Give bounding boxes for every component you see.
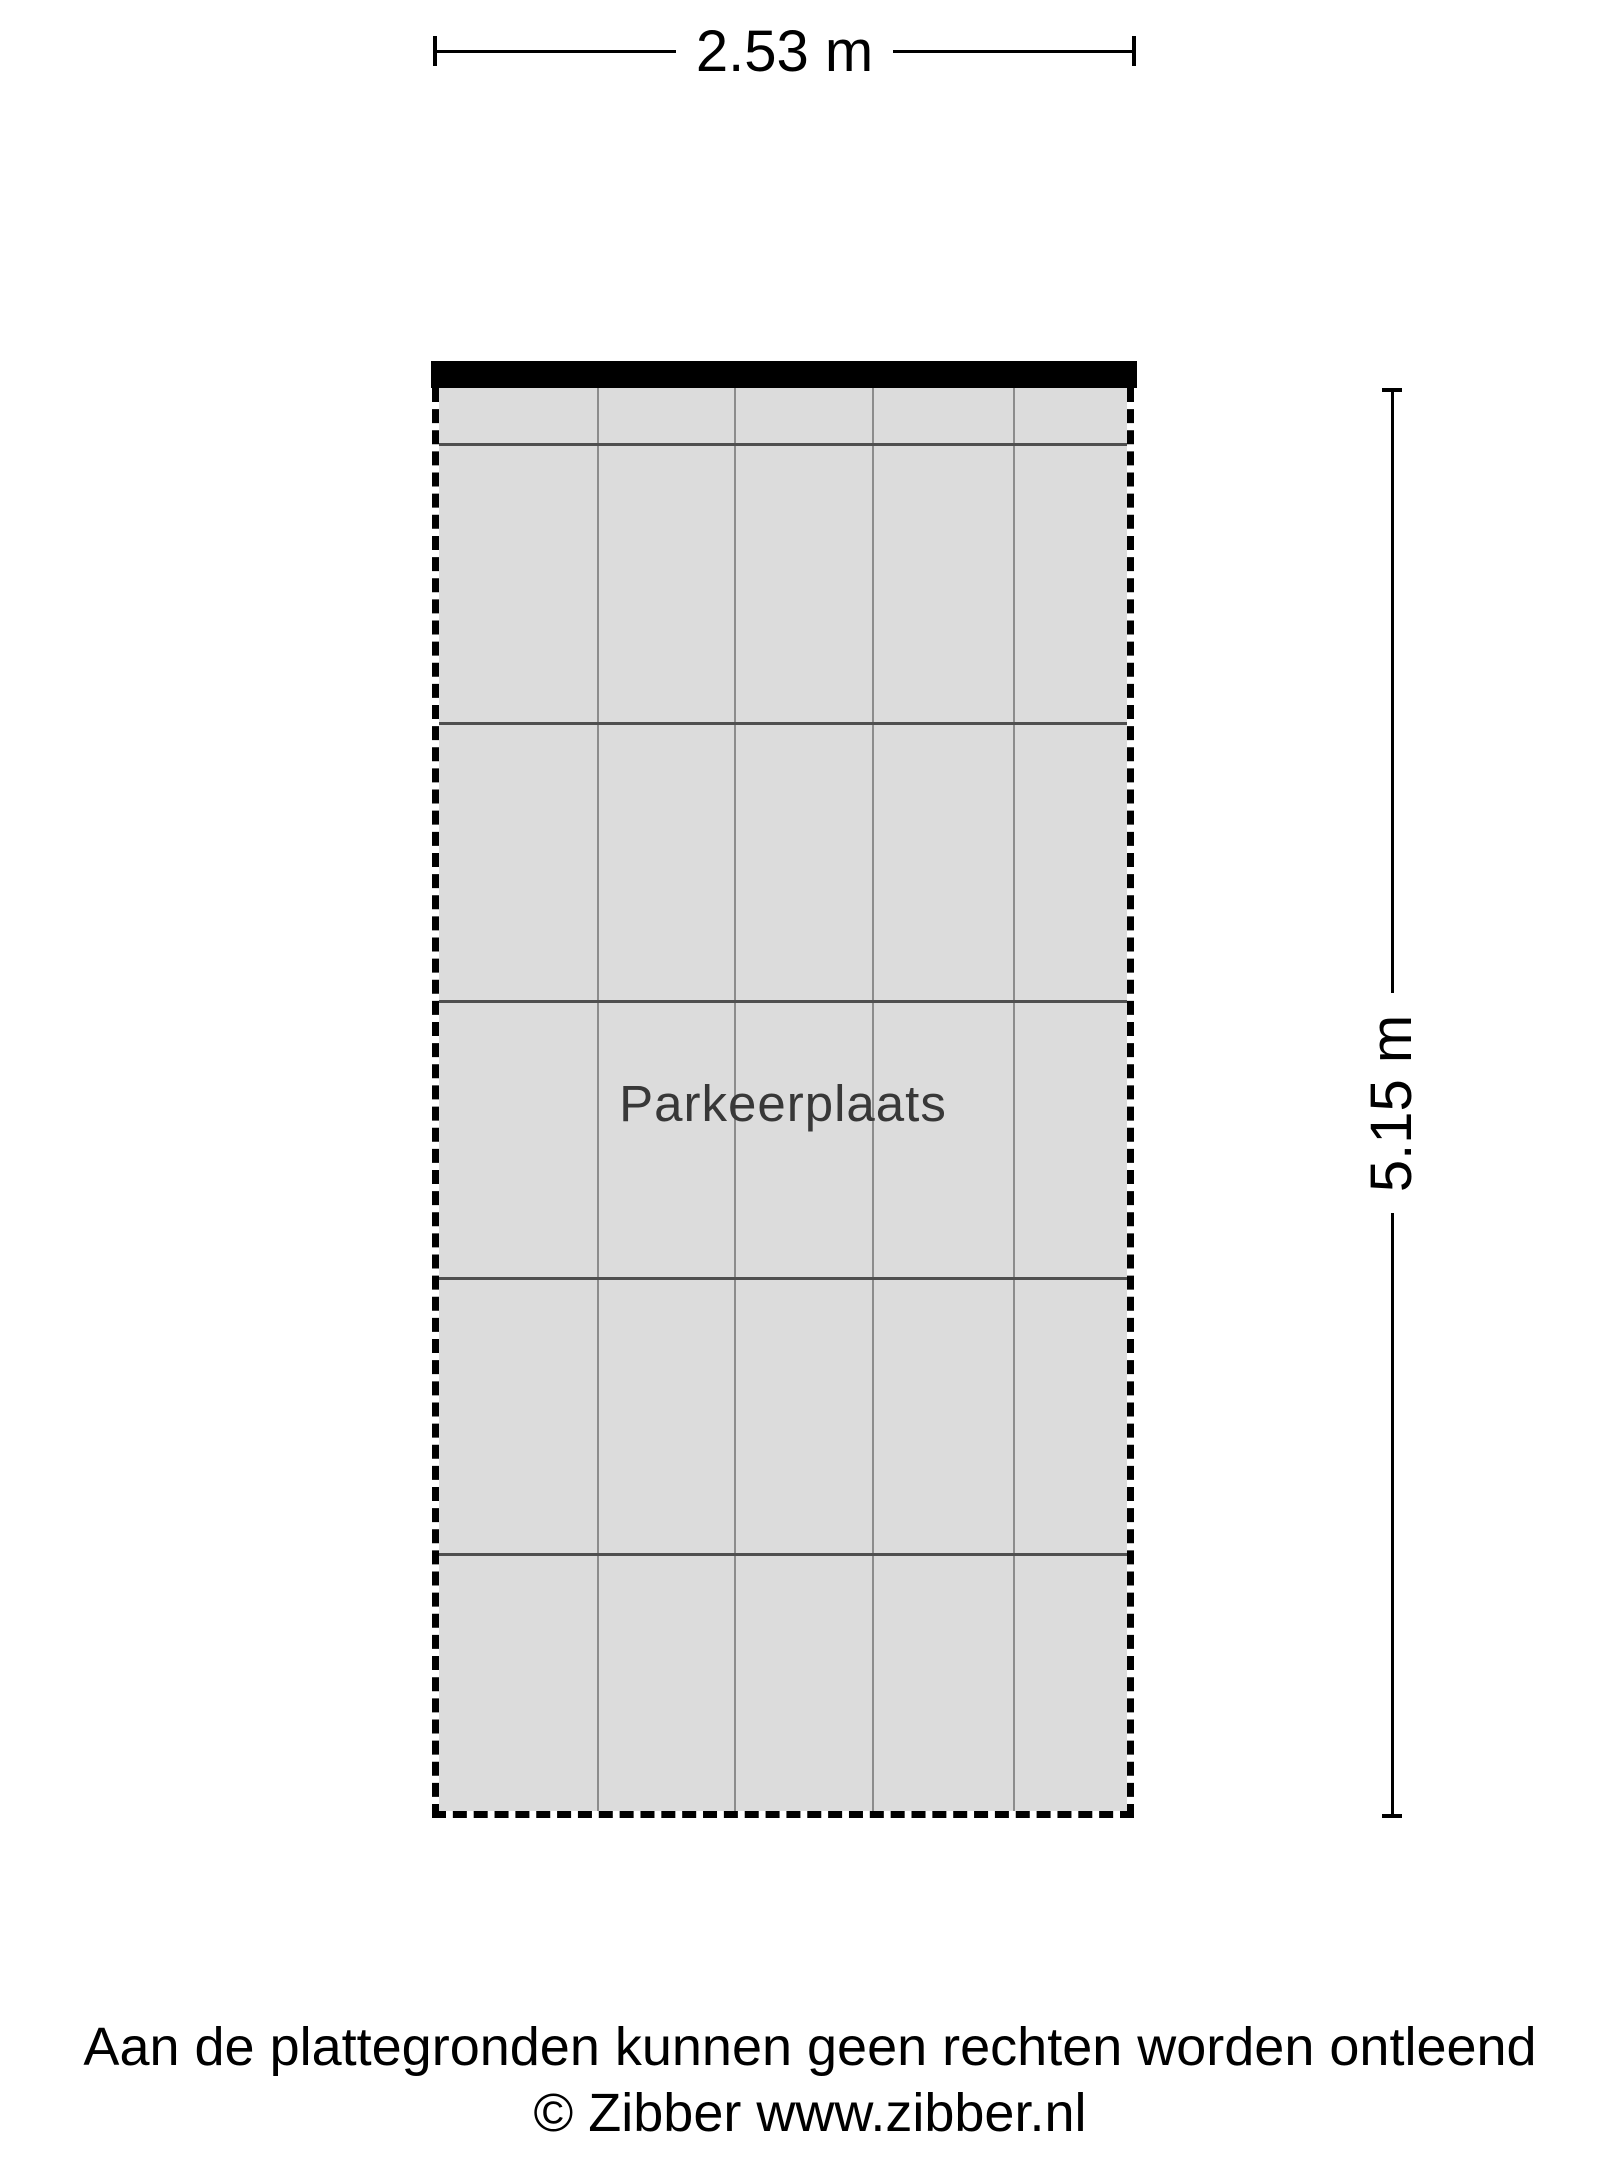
tile-grid-line-horizontal <box>439 1000 1127 1003</box>
dimension-tick-right <box>1132 36 1136 66</box>
width-dimension-label: 2.53 m <box>676 18 893 85</box>
tile-grid-line-horizontal <box>439 443 1127 446</box>
dimension-line-top-segment <box>1391 392 1394 993</box>
room-label: Parkeerplaats <box>439 1074 1127 1133</box>
tile-grid-line-horizontal <box>439 722 1127 725</box>
height-dimension: 5.15 m <box>1377 388 1407 1818</box>
dimension-line-right-segment <box>893 50 1132 53</box>
tile-grid-line-horizontal <box>439 1553 1127 1556</box>
top-wall <box>431 361 1137 388</box>
dimension-tick-bottom <box>1382 1814 1402 1818</box>
width-dimension: 2.53 m <box>433 23 1136 79</box>
disclaimer-text: Aan de plattegronden kunnen geen rechten… <box>0 2014 1620 2080</box>
height-dimension-label-box: 5.15 m <box>1377 993 1407 1213</box>
tile-grid-line-horizontal <box>439 1277 1127 1280</box>
floorplan-page: 2.53 m Parkeerplaats 5.15 m Aan de platt… <box>0 0 1620 2160</box>
dimension-line-bottom-segment <box>1391 1213 1394 1814</box>
footer: Aan de plattegronden kunnen geen rechten… <box>0 2014 1620 2146</box>
copyright-text: © Zibber www.zibber.nl <box>0 2080 1620 2146</box>
height-dimension-label: 5.15 m <box>1359 1014 1426 1191</box>
parking-space: Parkeerplaats <box>432 388 1134 1818</box>
dimension-line-left-segment <box>437 50 676 53</box>
